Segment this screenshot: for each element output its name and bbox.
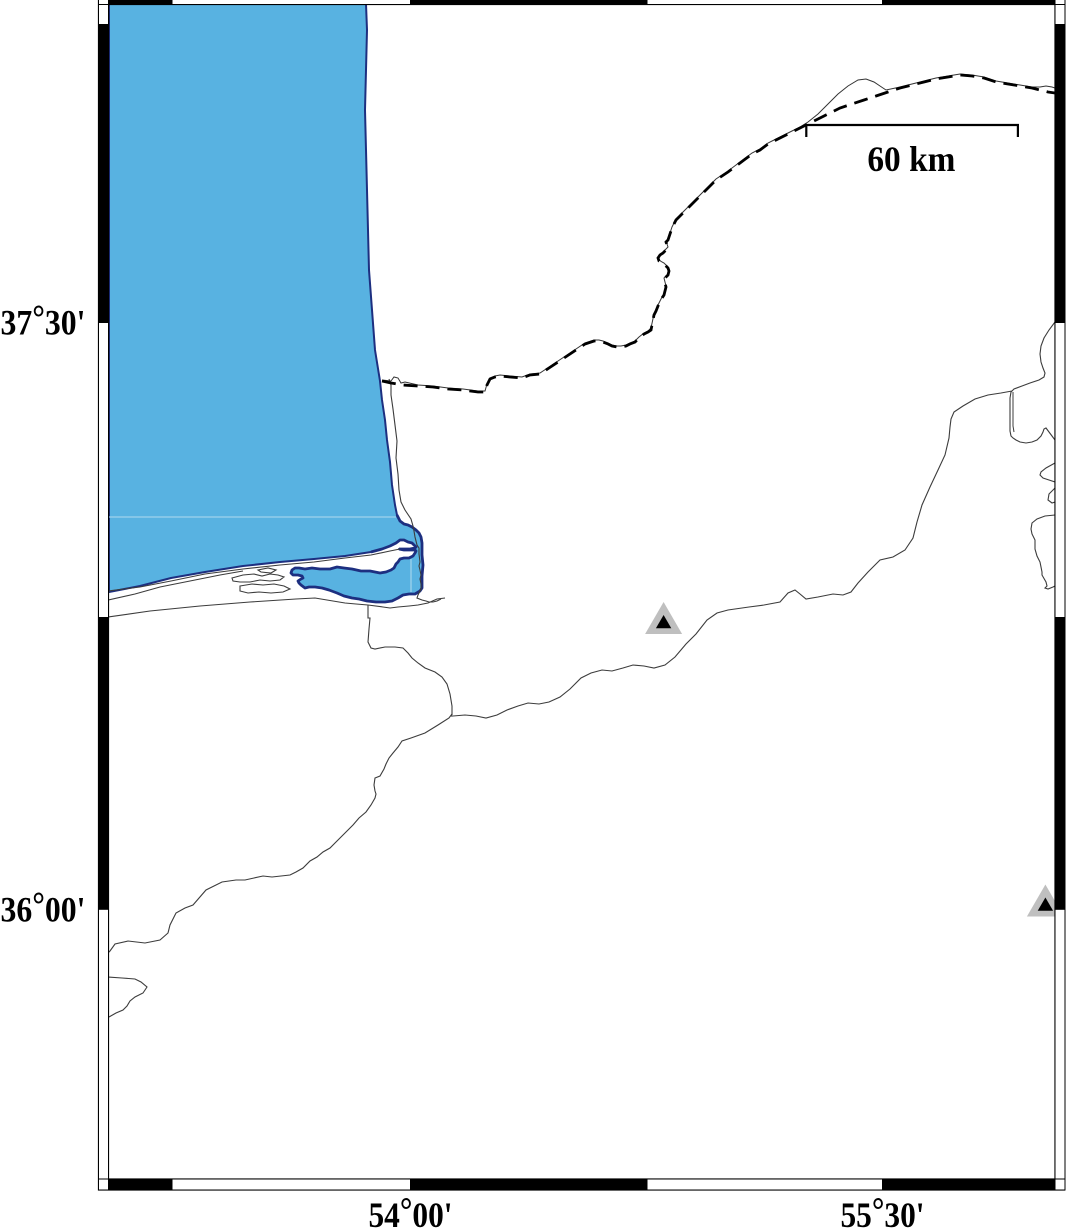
svg-text:55°30': 55°30' [841, 1190, 925, 1229]
svg-text:54°00': 54°00' [369, 1190, 453, 1229]
svg-text:37°30': 37°30' [1, 298, 86, 343]
svg-text:36°00': 36°00' [1, 884, 86, 929]
svg-text:60 km: 60 km [867, 139, 955, 179]
